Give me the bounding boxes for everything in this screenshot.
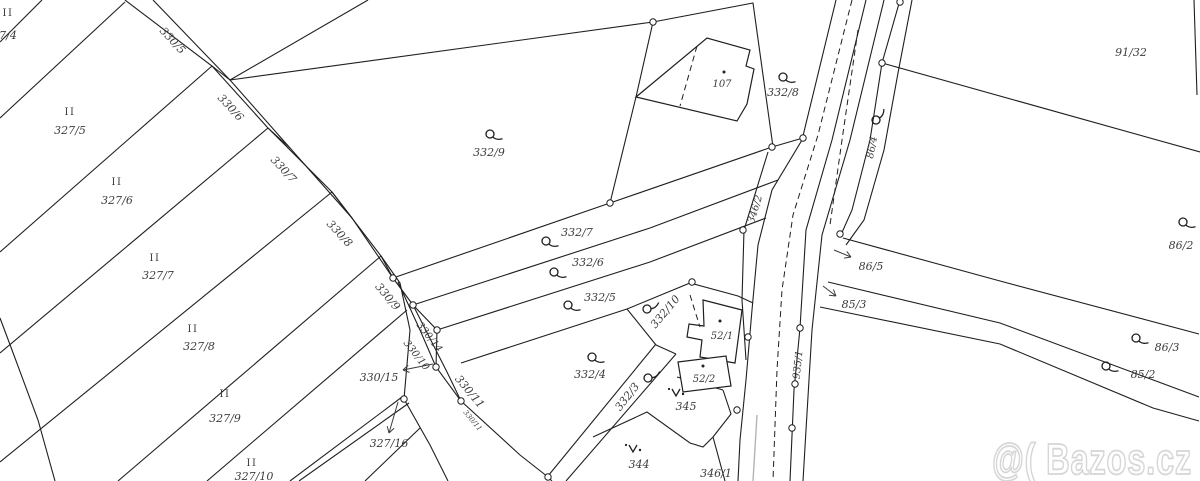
boundary-point-circle — [897, 0, 903, 5]
boundary-line — [882, 63, 1200, 152]
boundary-point-circle — [769, 144, 775, 150]
parcel-label: 330/8 — [324, 218, 355, 250]
land-class-mark: II — [3, 8, 14, 19]
boundary-point-circle — [410, 302, 416, 308]
grassland-icon — [550, 268, 567, 277]
boundary-line — [548, 344, 656, 476]
boundary-point-circle — [734, 407, 740, 413]
parcel-label: 330/11 — [462, 409, 484, 433]
parcel-label: 86/5 — [859, 260, 884, 273]
boundary-line — [230, 0, 368, 80]
building-outline — [636, 38, 754, 121]
grassland-icon — [588, 353, 605, 362]
boundary-line — [840, 0, 900, 237]
parcel-label: 86/3 — [1155, 341, 1180, 354]
land-class-mark: II — [112, 177, 123, 188]
boundary-line — [0, 128, 268, 353]
boundary-point-circle — [792, 381, 798, 387]
parcel-label: 327/5 — [54, 124, 86, 137]
bazos-watermark: @( Bazos.cz — [992, 435, 1192, 481]
parcel-label: 345 — [676, 400, 697, 413]
boundary-point-circle — [607, 200, 613, 206]
parcel-label: 327/9 — [209, 412, 241, 425]
boundary-line — [230, 22, 653, 80]
parcel-label: 327/6 — [101, 194, 133, 207]
boundary-line — [413, 180, 778, 305]
boundary-line — [656, 345, 676, 354]
parcel-label: 327/10 — [235, 470, 274, 481]
parcel-label: 85/2 — [1131, 368, 1156, 381]
grassland-icon — [486, 130, 503, 139]
parcel-label: 330/11 — [452, 373, 487, 411]
boundary-line — [212, 66, 230, 80]
parcel-label: 332/5 — [584, 291, 616, 304]
boundary-point-circle — [745, 334, 751, 340]
dashed-boundary-line — [830, 30, 858, 225]
building-dot — [719, 320, 722, 323]
parcel-label: 330/7 — [268, 154, 299, 186]
boundary-point-circle — [650, 19, 656, 25]
tree-icon — [668, 388, 684, 396]
parcel-label: 935/1 — [792, 350, 806, 380]
grassland-icon — [779, 73, 796, 82]
boundary-line — [332, 192, 352, 218]
boundary-point-circle — [433, 364, 439, 370]
boundary-point-circle — [879, 60, 885, 66]
dashed-boundary-line — [690, 295, 700, 327]
parcel-label: 332/6 — [572, 256, 604, 269]
boundary-line — [118, 256, 381, 481]
grassland-icon — [871, 107, 884, 125]
boundary-line — [0, 192, 332, 462]
parcel-label: 344 — [629, 458, 650, 471]
parcel-label: 330/6 — [215, 92, 246, 124]
boundary-line — [268, 128, 290, 148]
boundary-line — [207, 310, 407, 481]
parcel-label: 107 — [712, 79, 732, 90]
boundary-line — [803, 0, 884, 481]
parcel-label: 85/3 — [842, 298, 867, 311]
parcel-label: 332/7 — [561, 226, 593, 239]
parcel-label: 91/32 — [1115, 46, 1147, 59]
boundary-point-circle — [789, 425, 795, 431]
dashed-boundary-line — [773, 0, 852, 481]
cadastral-map: II7/4II327/5II327/6II327/7II327/8II327/9… — [0, 0, 1200, 481]
grassland-icon — [642, 366, 660, 385]
boundary-line — [742, 152, 768, 360]
boundary-point-circle — [800, 135, 806, 141]
boundary-line — [0, 318, 55, 481]
parcel-label: 332/9 — [473, 146, 505, 159]
parcel-label: 327/8 — [183, 340, 215, 353]
boundary-line — [0, 66, 212, 252]
land-class-mark: II — [65, 107, 76, 118]
parcel-label: 7/4 — [0, 29, 17, 42]
building-dot — [702, 365, 705, 368]
boundary-line — [843, 238, 1199, 334]
grassland-icon — [564, 301, 581, 310]
boundary-line — [627, 309, 656, 345]
land-class-mark: II — [188, 324, 199, 335]
boundary-point-circle — [401, 396, 407, 402]
parcel-label: 86/4 — [865, 135, 880, 159]
boundary-point-circle — [740, 227, 746, 233]
boundary-point-circle — [689, 279, 695, 285]
parcel-label: 332/4 — [574, 368, 606, 381]
boundary-point-circle — [545, 474, 551, 480]
parcel-label: 327/7 — [142, 269, 174, 282]
gray-boundary-line — [753, 415, 757, 481]
boundary-point-circle — [458, 398, 464, 404]
boundary-line — [381, 256, 393, 278]
cadastral-map-screenshot: II7/4II327/5II327/6II327/7II327/8II327/9… — [0, 0, 1200, 481]
land-class-mark: II — [150, 253, 161, 264]
parcel-label: 52/1 — [711, 331, 733, 342]
boundary-line — [0, 2, 125, 118]
parcel-label: 52/2 — [693, 374, 715, 385]
boundary-point-circle — [434, 327, 440, 333]
parcel-label: 86/2 — [1169, 239, 1194, 252]
boundary-point-circle — [797, 325, 803, 331]
parcel-label: 327/16 — [370, 437, 409, 450]
grassland-icon — [542, 237, 559, 246]
boundary-line — [365, 428, 420, 481]
land-class-mark: II — [220, 389, 231, 400]
label-leader-arrow — [823, 286, 836, 296]
boundary-point-circle — [390, 275, 396, 281]
boundary-line — [610, 22, 653, 203]
label-leader-arrow — [834, 250, 851, 258]
parcel-label: 332/3 — [612, 380, 642, 413]
boundary-point-circle — [837, 231, 843, 237]
boundary-line — [713, 390, 731, 437]
parcel-label: 330/15 — [360, 371, 399, 384]
parcel-label: 346/1 — [700, 467, 732, 480]
grassland-icon — [1132, 334, 1149, 343]
boundary-line — [1194, 0, 1197, 95]
land-class-mark: II — [247, 458, 258, 469]
tree-icon — [625, 444, 641, 452]
parcel-label: 346/2 — [746, 194, 765, 225]
grassland-icon — [1179, 218, 1196, 227]
parcel-label: 330/5 — [157, 25, 188, 57]
building-dot — [723, 71, 726, 74]
boundary-line — [790, 0, 866, 481]
boundary-line — [820, 307, 1199, 421]
parcel-label: 332/8 — [767, 86, 799, 99]
